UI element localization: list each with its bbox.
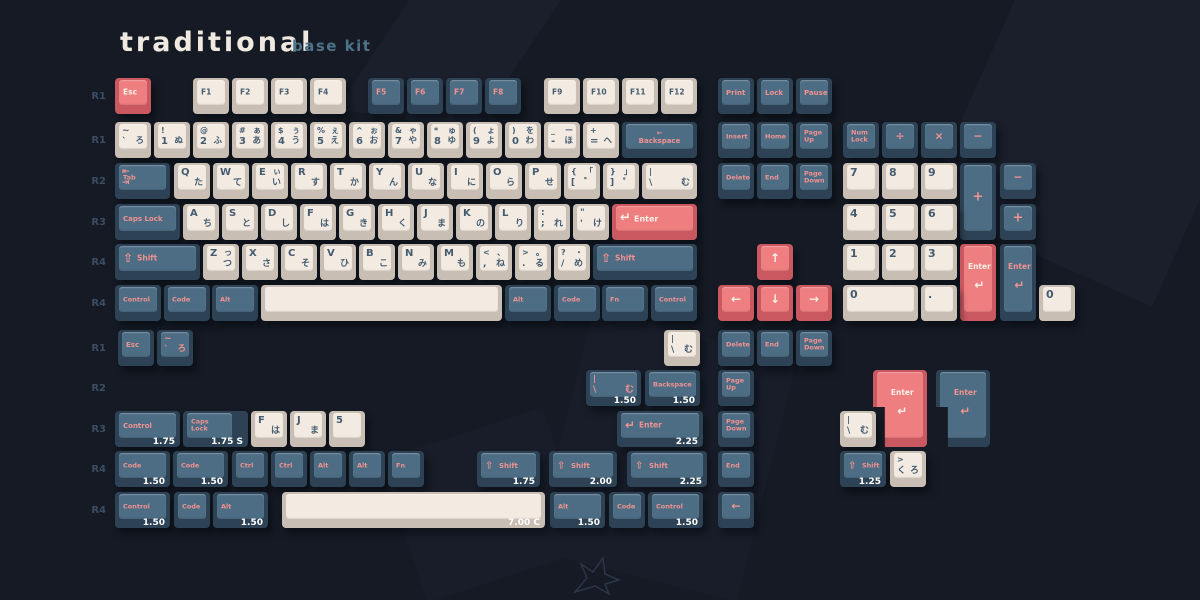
key-e: Eぃい bbox=[252, 163, 288, 199]
keycap-top: Enter↵ bbox=[940, 372, 986, 438]
key-9: (ょ9よ bbox=[466, 122, 502, 158]
key-legend: | bbox=[649, 167, 652, 176]
key-home: Home bbox=[757, 122, 793, 158]
keycap-top: Ctrl bbox=[236, 453, 264, 478]
keycap-top: ⇧Shift bbox=[481, 453, 536, 478]
keycap-top: F4 bbox=[314, 80, 342, 105]
keycap-top: Mも bbox=[441, 246, 469, 271]
keycap-top: Page Up bbox=[800, 124, 828, 149]
key-legend: Alt bbox=[558, 503, 568, 510]
key-legend: X bbox=[249, 248, 257, 260]
keycap-top: Enter↵ bbox=[877, 372, 923, 438]
key-legend: Shift bbox=[571, 461, 590, 469]
key-r: Rす bbox=[291, 163, 327, 199]
key-legend: 7 bbox=[395, 136, 402, 148]
keycap-top: !1ぬ bbox=[158, 124, 186, 149]
keycap-top: − bbox=[1004, 165, 1032, 190]
key-alt-esc: Esc bbox=[118, 330, 154, 366]
key-legend: F11 bbox=[630, 88, 646, 97]
keycap-top: Control bbox=[655, 287, 693, 312]
key-legend: ↓ bbox=[770, 293, 780, 307]
key-legend: ' bbox=[580, 219, 583, 229]
key-alt-alt-150b: Alt1.50 bbox=[550, 492, 605, 528]
key-z: Zっつ bbox=[203, 244, 239, 280]
key-legend: た bbox=[194, 178, 203, 188]
key-k: Kの bbox=[456, 204, 492, 240]
key-legend: は bbox=[320, 219, 329, 229]
key-legend: - bbox=[551, 136, 555, 148]
keycap-top: }」]゜ bbox=[607, 165, 635, 190]
key-2: @2ふ bbox=[193, 122, 229, 158]
keycap-top: 7 bbox=[847, 165, 875, 190]
keycap-top: Caps Lock bbox=[187, 413, 232, 438]
key-legend: 2 bbox=[889, 248, 897, 261]
key-comma: <、,ね bbox=[476, 244, 512, 280]
keycap-top: + bbox=[964, 165, 992, 231]
key-caps: Caps Lock bbox=[115, 204, 180, 240]
key-legend: − bbox=[1013, 171, 1022, 184]
key-pgdn: Page Down bbox=[796, 163, 832, 199]
keycap-top: Aち bbox=[187, 206, 215, 231]
keycap-top: . bbox=[925, 287, 953, 312]
key-legend: K bbox=[463, 208, 471, 220]
key-legend: 8 bbox=[434, 136, 441, 148]
keycap-top bbox=[286, 494, 541, 519]
key-legend: 7 bbox=[850, 167, 858, 180]
key-alt-control-150b: Control1.50 bbox=[648, 492, 703, 528]
key-w: Wて bbox=[213, 163, 249, 199]
key-p: Pせ bbox=[525, 163, 561, 199]
key-legend: Fn bbox=[396, 462, 405, 469]
key-rcode: Code bbox=[554, 285, 600, 321]
keycap-top: ↵Enter bbox=[621, 413, 699, 438]
keycap-top: &ゃ7や bbox=[392, 124, 420, 149]
key-a: Aち bbox=[183, 204, 219, 240]
key-lctrl: Control bbox=[115, 285, 161, 321]
logo-icon bbox=[572, 556, 622, 596]
key-legend: Caps Lock bbox=[123, 214, 163, 222]
key-legend: Delete bbox=[726, 341, 750, 348]
key-legend: Enter bbox=[1008, 263, 1031, 272]
size-label: 1.75 bbox=[513, 477, 535, 487]
key-legend: | bbox=[671, 334, 674, 343]
keycap-top: ← bbox=[722, 287, 750, 312]
key-legend: M bbox=[444, 248, 454, 260]
keycap-top: |\む bbox=[646, 165, 693, 190]
key-legend: 」 bbox=[624, 167, 632, 176]
key-legend: Shift bbox=[862, 462, 879, 469]
key-extra-sub: − bbox=[1000, 163, 1036, 199]
key-legend: ぁ bbox=[253, 126, 261, 135]
keycap-top: Ctrl bbox=[275, 453, 303, 478]
key-legend: Enter bbox=[639, 421, 662, 430]
key-legend: Enter bbox=[891, 389, 914, 398]
key-legend: ↵ bbox=[960, 405, 970, 419]
size-label: 1.50 bbox=[143, 518, 165, 528]
key-alt-alt-150a: Alt1.50 bbox=[213, 492, 268, 528]
key-f11: F11 bbox=[622, 78, 658, 114]
key-8: *ゅ8ゆ bbox=[427, 122, 463, 158]
keycap-top: Fn bbox=[392, 453, 420, 478]
keycap-top: 0 bbox=[1043, 287, 1071, 312]
keycap-top: F8 bbox=[489, 80, 517, 105]
keycap-top: Print bbox=[722, 80, 750, 105]
key-7: &ゃ7や bbox=[388, 122, 424, 158]
key-alt-shift-125: ⇧Shift1.25 bbox=[840, 451, 886, 487]
key-legend: に bbox=[467, 178, 476, 188]
key-c: Cそ bbox=[281, 244, 317, 280]
key-np4: 4 bbox=[843, 204, 879, 240]
key-legend: − bbox=[973, 130, 982, 143]
key-legend: ÷ bbox=[895, 130, 904, 143]
key-alt-code-150b: Code1.50 bbox=[173, 451, 228, 487]
keycap-top: Alt bbox=[509, 287, 547, 312]
keycap-top: ⇤Tab⇥ bbox=[119, 165, 166, 190]
key-legend: B bbox=[366, 248, 374, 260]
keycap-top: Fn bbox=[606, 287, 644, 312]
key-legend: ` bbox=[164, 345, 169, 355]
key-legend: N bbox=[405, 248, 413, 260]
keycap-top: 4 bbox=[847, 206, 875, 231]
key-legend: さ bbox=[262, 259, 271, 269]
key-legend: F bbox=[258, 415, 265, 427]
key-legend: く bbox=[897, 466, 906, 476]
keycap-top: <、,ね bbox=[480, 246, 508, 271]
key-pgup: Page Up bbox=[796, 122, 832, 158]
key-legend: し bbox=[281, 219, 290, 229]
key-legend: ま bbox=[310, 426, 319, 436]
key-legend: ろ bbox=[135, 137, 144, 147]
key-legend: め bbox=[574, 259, 583, 269]
key-fn: Fn bbox=[602, 285, 648, 321]
key-pause: Pause bbox=[796, 78, 832, 114]
keycap-top: %ぇ5え bbox=[314, 124, 342, 149]
key-alt-j: Jま bbox=[290, 411, 326, 447]
keycap-top: Jま bbox=[421, 206, 449, 231]
keycap-top: Delete bbox=[722, 332, 750, 357]
key-legend: ん bbox=[389, 178, 398, 188]
key-legend: G bbox=[346, 208, 354, 220]
keycap-top: Kの bbox=[460, 206, 488, 231]
key-alt-ro: >くろ bbox=[890, 451, 926, 487]
keycap-top: 1 bbox=[847, 246, 875, 271]
keycap-top: "'け bbox=[577, 206, 605, 231]
key-alt-ctrl-a: Ctrl bbox=[232, 451, 268, 487]
key-legend: F1 bbox=[201, 88, 211, 97]
keycap-top: Alt bbox=[217, 494, 264, 519]
key-legend: へ bbox=[603, 137, 612, 147]
key-legend: { bbox=[571, 167, 577, 176]
row-label: R1 bbox=[76, 135, 106, 146]
key-legend: Enter bbox=[954, 389, 977, 398]
keycap-top: 8 bbox=[886, 165, 914, 190]
keycap-top: ↑ bbox=[761, 246, 789, 271]
key-legend: 4 bbox=[850, 208, 858, 221]
keycap-set-render: traditional base kit R1R1R2R3R4R4R1R2R3R… bbox=[0, 0, 1200, 600]
keycap-top: >。.る bbox=[519, 246, 547, 271]
key-legend: ⇧ bbox=[848, 460, 856, 472]
key-extra-0: 0 bbox=[1039, 285, 1075, 321]
key-alt-shift-175: ⇧Shift1.75 bbox=[477, 451, 540, 487]
key-legend: V bbox=[327, 248, 335, 260]
keycap-top: Gき bbox=[343, 206, 371, 231]
keycap-top: Control bbox=[119, 494, 166, 519]
key-legend: ゛ bbox=[584, 178, 593, 188]
key-legend: → bbox=[809, 293, 819, 307]
key-legend: Shift bbox=[137, 254, 157, 263]
key-o: Oら bbox=[486, 163, 522, 199]
key-legend: う bbox=[291, 137, 300, 147]
key-legend: ; bbox=[541, 219, 545, 229]
keycap-top: ⇧Shift bbox=[597, 246, 693, 271]
key-legend: O bbox=[493, 167, 502, 179]
keycap-top: Vひ bbox=[324, 246, 352, 271]
keycap-top: Eぃい bbox=[256, 165, 284, 190]
keycap-top: F12 bbox=[665, 80, 693, 105]
key-legend: 、 bbox=[497, 248, 505, 257]
keycap-top: Tか bbox=[334, 165, 362, 190]
key-legend: Control bbox=[656, 503, 683, 510]
key-legend: F12 bbox=[669, 88, 685, 97]
key-alt-caps-stepped: Caps Lock1.75 S bbox=[183, 411, 248, 447]
keycap-top: ← Backspace bbox=[626, 124, 693, 149]
keycap-top: ⇧Shift bbox=[553, 453, 613, 478]
key-alt-control-150a: Control1.50 bbox=[115, 492, 170, 528]
key-legend: Fn bbox=[610, 296, 619, 303]
keycap-top: Delete bbox=[722, 165, 750, 190]
size-label: 1.50 bbox=[241, 518, 263, 528]
size-label: 1.50 bbox=[578, 518, 600, 528]
key-u: Uな bbox=[408, 163, 444, 199]
key-legend: ← bbox=[731, 293, 741, 307]
key-np6: 6 bbox=[921, 204, 957, 240]
keycap-top: Lock bbox=[761, 80, 789, 105]
keycap-top: Page Down bbox=[800, 165, 828, 190]
key-legend: 6 bbox=[356, 136, 363, 148]
key-alt-code-1u-a: Code bbox=[174, 492, 210, 528]
key-legend: ⇥ bbox=[122, 178, 130, 188]
key-f1: F1 bbox=[193, 78, 229, 114]
keycap-top: @2ふ bbox=[197, 124, 225, 149]
key-legend: ゆ bbox=[447, 137, 456, 147]
key-legend: え bbox=[330, 137, 339, 147]
key-extra-add: + bbox=[1000, 204, 1036, 240]
key-legend: R bbox=[298, 167, 306, 179]
size-label: 1.50 bbox=[614, 396, 636, 406]
key-legend: 0 bbox=[1046, 289, 1054, 302]
row-label: R4 bbox=[76, 298, 106, 309]
key-f4: F4 bbox=[310, 78, 346, 114]
key-legend: Enter bbox=[968, 263, 991, 272]
key-alt-pgup: Page Up bbox=[718, 370, 754, 406]
key-npsub: − bbox=[960, 122, 996, 158]
keycap-top: 9 bbox=[925, 165, 953, 190]
key-legend: 2 bbox=[200, 136, 207, 148]
key-semicolon: :;れ bbox=[534, 204, 570, 240]
key-legend: ⇧ bbox=[557, 460, 565, 472]
key-npenter-red: Enter↵ bbox=[960, 244, 996, 321]
keycap-top: Alt bbox=[216, 287, 254, 312]
keycap-top: Wて bbox=[217, 165, 245, 190]
key-legend: 1 bbox=[850, 248, 858, 261]
key-legend: Alt bbox=[221, 503, 231, 510]
key-alt-shift-225: ⇧Shift2.25 bbox=[627, 451, 707, 487]
keycap-top: Code bbox=[613, 494, 641, 519]
key-6: ^ぉ6お bbox=[349, 122, 385, 158]
key-legend: そ bbox=[301, 259, 310, 269]
keycap-top: Pause bbox=[800, 80, 828, 105]
key-legend: Code bbox=[617, 503, 635, 510]
key-np9: 9 bbox=[921, 163, 957, 199]
key-legend: ⇧ bbox=[485, 460, 493, 472]
key-5: %ぇ5え bbox=[310, 122, 346, 158]
key-legend: ろ bbox=[177, 345, 186, 355]
row-label: R1 bbox=[76, 343, 106, 354]
keycap-top: Esc bbox=[119, 80, 147, 105]
key-legend: Alt bbox=[318, 462, 328, 469]
key-legend: 3 bbox=[239, 136, 246, 148]
key-legend: ↵ bbox=[1014, 279, 1024, 293]
key-legend: L bbox=[502, 208, 508, 220]
key-legend: り bbox=[515, 219, 524, 229]
key-legend: End bbox=[765, 174, 779, 181]
key-legend: て bbox=[233, 178, 242, 188]
keycap-top: Esc bbox=[122, 332, 150, 357]
row-label: R4 bbox=[76, 464, 106, 475]
kit-title: traditional bbox=[120, 27, 313, 58]
key-legend: Enter bbox=[634, 214, 658, 223]
key-legend: ゅ bbox=[448, 126, 456, 135]
key-legend: = bbox=[590, 136, 598, 148]
keycap-top: Jま bbox=[294, 413, 322, 438]
key-legend: F bbox=[307, 208, 314, 220]
key-legend: ? bbox=[561, 248, 566, 257]
key-legend: Delete bbox=[726, 174, 750, 181]
keycap-top: Dし bbox=[265, 206, 293, 231]
key-legend: っ bbox=[224, 248, 232, 257]
keycap-top: 5 bbox=[886, 206, 914, 231]
key-npadd: + bbox=[960, 163, 996, 240]
key-f8: F8 bbox=[485, 78, 521, 114]
keycap-top: *ゅ8ゆ bbox=[431, 124, 459, 149]
keycap-top: ÷ bbox=[886, 124, 914, 149]
key-legend: ^ bbox=[356, 126, 363, 135]
key-npenter-blue: Enter↵ bbox=[1000, 244, 1036, 321]
kit-subtitle: base kit bbox=[292, 37, 371, 55]
key-legend: つ bbox=[223, 259, 232, 269]
key-legend: [ bbox=[571, 178, 575, 188]
keycap-top: _ー-ほ bbox=[548, 124, 576, 149]
key-left: ← bbox=[718, 285, 754, 321]
keycap-top: Zっつ bbox=[207, 246, 235, 271]
key-npdiv: ÷ bbox=[882, 122, 918, 158]
key-legend: れ bbox=[554, 219, 563, 229]
key-legend: る bbox=[535, 259, 544, 269]
key-legend: Shift bbox=[499, 461, 518, 469]
key-legend: け bbox=[593, 219, 602, 229]
key-l: Lり bbox=[495, 204, 531, 240]
key-legend: む bbox=[860, 426, 869, 436]
row-label: R3 bbox=[76, 217, 106, 228]
key-legend: @ bbox=[200, 126, 208, 135]
key-legend: 9 bbox=[928, 167, 936, 180]
key-alt-f: Fは bbox=[251, 411, 287, 447]
key-legend: F3 bbox=[279, 88, 289, 97]
keycap-top: )を0わ bbox=[509, 124, 537, 149]
key-legend: ふ bbox=[213, 137, 222, 147]
key-npdot: . bbox=[921, 285, 957, 321]
key-legend: Page Up bbox=[804, 129, 822, 144]
key-f7: F7 bbox=[446, 78, 482, 114]
keycap-top: Page Down bbox=[722, 413, 750, 438]
key-alt-yen-r2: |\む1.50 bbox=[586, 370, 641, 406]
keycap-top: F10 bbox=[587, 80, 615, 105]
key-down: ↓ bbox=[757, 285, 793, 321]
key-legend: " bbox=[580, 208, 585, 218]
key-rbracket: }」]゜ bbox=[603, 163, 639, 199]
keycap-top: F3 bbox=[275, 80, 303, 105]
key-iso-enter-blue: Enter↵ bbox=[936, 370, 990, 447]
keycap-top: F7 bbox=[450, 80, 478, 105]
key-iso-enter-red: Enter↵ bbox=[873, 370, 927, 447]
key-d: Dし bbox=[261, 204, 297, 240]
key-legend: Print bbox=[726, 88, 745, 96]
key-x: Xさ bbox=[242, 244, 278, 280]
key-legend: ょ bbox=[487, 126, 495, 135]
key-legend: J bbox=[297, 415, 301, 427]
key-legend: ひ bbox=[340, 259, 349, 269]
keycap-top: Control bbox=[119, 287, 157, 312]
key-legend: ! bbox=[161, 126, 165, 135]
keycap-top: #ぁ3あ bbox=[236, 124, 264, 149]
key-legend: Num Lock bbox=[851, 129, 868, 144]
key-legend: わ bbox=[525, 137, 534, 147]
key-legend: ( bbox=[473, 126, 477, 135]
key-legend: を bbox=[526, 126, 534, 135]
keycap-top: Caps Lock bbox=[119, 206, 176, 231]
key-alt-enter-225: ↵Enter2.25 bbox=[617, 411, 703, 447]
key-alt-pgdn-2: Page Down bbox=[718, 411, 754, 447]
key-space bbox=[261, 285, 502, 321]
key-legend: ぬ bbox=[174, 137, 183, 147]
keycap-top: Bこ bbox=[363, 246, 391, 271]
key-legend: Alt bbox=[513, 296, 523, 303]
key-rctrl: Control bbox=[651, 285, 697, 321]
keycap-top: Enter↵ bbox=[1004, 246, 1032, 312]
key-m: Mも bbox=[437, 244, 473, 280]
key-legend: 5 bbox=[317, 136, 324, 148]
key-legend: Ctrl bbox=[240, 462, 253, 469]
key-legend: お bbox=[369, 137, 378, 147]
key-legend: \ bbox=[671, 345, 674, 355]
key-up: ↑ bbox=[757, 244, 793, 280]
key-legend: む bbox=[681, 178, 690, 188]
keycap-top: Home bbox=[761, 124, 789, 149]
key-legend: + bbox=[973, 191, 984, 206]
key-alt-pgdn: Page Down bbox=[796, 330, 832, 366]
key-legend: 。 bbox=[536, 248, 544, 257]
key-legend: 5 bbox=[336, 415, 343, 427]
key-legend: | bbox=[593, 374, 596, 383]
key-npmul: × bbox=[921, 122, 957, 158]
keycap-top: $ぅ4う bbox=[275, 124, 303, 149]
key-legend: あ bbox=[252, 137, 261, 147]
keycap-top: Yん bbox=[373, 165, 401, 190]
key-legend: < bbox=[483, 248, 490, 257]
key-f5: F5 bbox=[368, 78, 404, 114]
key-legend: ⇧ bbox=[601, 252, 611, 266]
key-np0: 0 bbox=[843, 285, 918, 321]
